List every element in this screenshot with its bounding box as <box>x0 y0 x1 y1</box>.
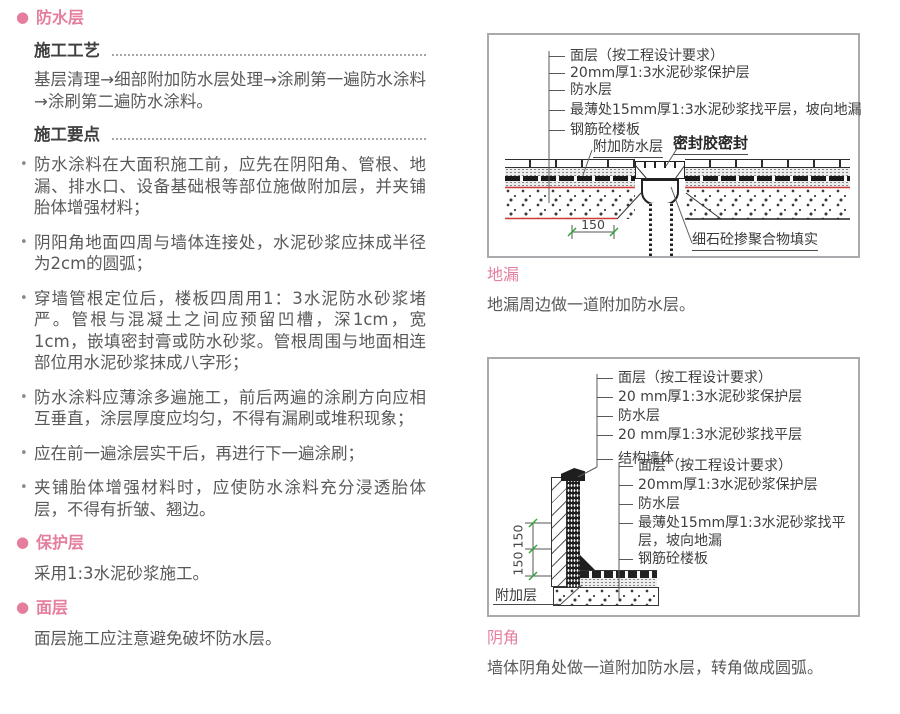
figure2-caption-title: 阴角 <box>487 629 519 647</box>
text-column: ● 防水层 施工工艺 基层清理→细部附加防水层处理→涂刷第一遍防水涂料→涂刷第二… <box>14 6 426 649</box>
layer-label-row: 20 mm厚1:3水泥砂浆找平层 <box>597 426 802 444</box>
dotted-rule <box>112 138 426 140</box>
section-title: 保护层 <box>36 533 84 552</box>
layer-label: 钢筋砼楼板 <box>638 550 708 568</box>
process-body: 基层清理→细部附加防水层处理→涂刷第一遍防水涂料→涂刷第二遍防水涂料。 <box>34 69 426 112</box>
layer-label-row: 最薄处15mm厚1:3水泥砂浆找平层，坡向地漏 <box>549 101 862 119</box>
figure-drain-detail: 面层（按工程设计要求） 20mm厚1:3水泥砂浆保护层 防水层 最薄处15mm厚… <box>487 33 860 258</box>
leader-tick <box>549 110 565 111</box>
figure1-caption-body: 地漏周边做一道附加防水层。 <box>487 295 695 315</box>
bullet-icon: ● <box>14 8 36 27</box>
process-heading-row: 施工工艺 <box>34 41 426 60</box>
layer-label: 面层（按工程设计要求） <box>618 369 772 387</box>
bullet-icon: • <box>14 477 34 520</box>
surface-layer-body: 面层施工应注意避免破坏防水层。 <box>34 628 426 650</box>
section-protective-layer: ● 保护层 <box>14 533 426 552</box>
points-list: • 防水涂料在大面积施工前，应先在阴阳角、管根、地漏、排水口、设备基础根等部位施… <box>14 154 426 520</box>
list-item-text: 应在前一遍涂层实干后，再进行下一遍涂刷； <box>34 443 426 465</box>
layer-label: 20mm厚1:3水泥砂浆保护层 <box>638 476 818 494</box>
layer-label: 面层（按工程设计要求） <box>570 47 724 65</box>
layer-label: 防水层 <box>570 81 612 99</box>
figure-corner-detail: 面层（按工程设计要求） 20 mm厚1:3水泥砂浆保护层 防水层 20 mm厚1… <box>487 357 860 617</box>
list-item: • 防水涂料在大面积施工前，应先在阴阳角、管根、地漏、排水口、设备基础根等部位施… <box>14 154 426 219</box>
section-surface-layer: ● 面层 <box>14 598 426 617</box>
corner-fillet <box>580 555 595 570</box>
bullet-icon: • <box>14 232 34 275</box>
protective-layer-body: 采用1:3水泥砂浆施工。 <box>34 563 426 585</box>
layer-label-row: 面层（按工程设计要求） <box>549 47 724 65</box>
callout-fine-concrete-fill: 细石砼掺聚合物填实 <box>692 229 818 251</box>
callout-attach-layer: 附加层 <box>495 585 537 605</box>
layer-label-row: 20 mm厚1:3水泥砂浆保护层 <box>597 388 802 406</box>
leader-tick <box>597 378 613 379</box>
leveling-mortar-layer <box>505 181 635 188</box>
leader-tick <box>549 130 565 131</box>
layer-label-row: 20mm厚1:3水泥砂浆保护层 <box>549 64 750 82</box>
leader-tick <box>549 73 565 74</box>
list-item: • 夹铺胎体增强材料时，应使防水涂料充分浸透胎体层，不得有折皱、翘边。 <box>14 477 426 520</box>
drain-grate <box>635 161 685 179</box>
section-title: 面层 <box>36 598 68 617</box>
layer-label-row: 防水层 <box>597 407 660 425</box>
layer-label-row: 最薄处15mm厚1:3水泥砂浆找平层，坡向地漏 <box>619 514 852 550</box>
section-waterproof-layer: ● 防水层 <box>14 8 426 27</box>
leader-tick <box>597 435 613 436</box>
bullet-icon: ● <box>14 598 36 617</box>
bullet-icon: • <box>14 387 34 430</box>
bullet-icon: ● <box>14 533 36 552</box>
list-item-text: 夹铺胎体增强材料时，应使防水涂料充分浸透胎体层，不得有折皱、翘边。 <box>34 477 426 520</box>
layer-label: 20 mm厚1:3水泥砂浆找平层 <box>618 426 802 444</box>
layer-label-row: 钢筋砼楼板 <box>619 550 708 568</box>
list-item-text: 防水涂料在大面积施工前，应先在阴阳角、管根、地漏、排水口、设备基础根等部位施做附… <box>34 154 426 219</box>
wall-waterproof-strip <box>567 473 580 587</box>
layer-label: 20mm厚1:3水泥砂浆保护层 <box>570 64 750 82</box>
points-heading: 施工要点 <box>34 125 100 144</box>
floor-slab <box>553 587 659 606</box>
drain-pipe-bore <box>652 203 670 256</box>
process-heading: 施工工艺 <box>34 41 100 60</box>
leader-tick <box>549 56 565 57</box>
drain-hub <box>641 179 679 205</box>
figure2-caption-body: 墙体阴角处做一道附加防水层，转角做成圆弧。 <box>487 658 823 678</box>
leader-tick <box>619 466 633 467</box>
layer-label-row: 面层（按工程设计要求） <box>619 457 792 475</box>
structural-wall <box>551 477 567 587</box>
list-item: • 应在前一遍涂层实干后，再进行下一遍涂刷； <box>14 443 426 465</box>
points-heading-row: 施工要点 <box>34 125 426 144</box>
section-title: 防水层 <box>36 8 84 27</box>
dotted-rule <box>112 54 426 56</box>
callout-underline <box>493 604 561 605</box>
leader-tick <box>619 504 633 505</box>
layer-label: 防水层 <box>638 495 680 513</box>
layer-label-row: 防水层 <box>549 81 612 99</box>
drain-pipe-wall <box>670 203 673 256</box>
layer-label: 最薄处15mm厚1:3水泥砂浆找平层，坡向地漏 <box>638 514 852 550</box>
callout-extra-waterproof: 附加防水层 <box>593 136 663 158</box>
layer-label: 面层（按工程设计要求） <box>638 457 792 475</box>
bullet-icon: • <box>14 443 34 465</box>
leader-tick <box>549 90 565 91</box>
leader-tick <box>597 459 613 460</box>
list-item: • 防水涂料应薄涂多遍施工，前后两遍的涂刷方向应相互垂直，涂层厚度应均匀，不得有… <box>14 387 426 430</box>
protect-mortar-layer <box>505 168 635 176</box>
layer-label-row: 面层（按工程设计要求） <box>597 369 772 387</box>
layer-label: 最薄处15mm厚1:3水泥砂浆找平层，坡向地漏 <box>570 101 862 119</box>
finish-tile-layer <box>685 159 850 168</box>
list-item: • 阴阳角地面四周与墙体连接处，水泥砂浆应抹成半径为2cm的圆弧； <box>14 232 426 275</box>
layer-label-row: 防水层 <box>619 495 680 513</box>
protect-mortar-layer <box>685 168 850 176</box>
list-item: • 穿墙管根定位后，楼板四周用1：3水泥防水砂浆堵严。管根与混凝土之间应预留凹槽… <box>14 288 426 374</box>
leader-tick <box>597 397 613 398</box>
floor-waterproof-layer <box>580 570 657 578</box>
layer-label-row: 20mm厚1:3水泥砂浆保护层 <box>619 476 818 494</box>
leader-tick <box>597 416 613 417</box>
floor-mortar-layer <box>580 578 657 587</box>
leveling-mortar-layer <box>685 181 850 188</box>
leader-tick <box>619 559 633 560</box>
waterproof-top-turnup <box>561 468 585 481</box>
figure1-caption-title: 地漏 <box>487 266 519 284</box>
callout-sealant: 密封胶密封 <box>673 132 748 155</box>
concrete-slab <box>505 188 635 219</box>
handbook-page: ● 防水层 施工工艺 基层清理→细部附加防水层处理→涂刷第一遍防水涂料→涂刷第二… <box>0 0 900 714</box>
list-item-text: 穿墙管根定位后，楼板四周用1：3水泥防水砂浆堵严。管根与混凝土之间应预留凹槽，深… <box>34 288 426 374</box>
finish-tile-layer <box>505 159 635 168</box>
list-item-text: 防水涂料应薄涂多遍施工，前后两遍的涂刷方向应相互垂直，涂层厚度应均匀，不得有漏刷… <box>34 387 426 430</box>
leader-tick <box>619 485 633 486</box>
leader-tick <box>619 523 633 524</box>
dimension-150: 150 <box>577 217 609 232</box>
concrete-slab <box>685 188 850 219</box>
bullet-icon: • <box>14 288 34 374</box>
list-item-text: 阴阳角地面四周与墙体连接处，水泥砂浆应抹成半径为2cm的圆弧； <box>34 232 426 275</box>
bullet-icon: • <box>14 154 34 219</box>
dimension-150-lower: 150 <box>511 548 526 580</box>
layer-label: 20 mm厚1:3水泥砂浆保护层 <box>618 388 802 406</box>
layer-label: 防水层 <box>618 407 660 425</box>
